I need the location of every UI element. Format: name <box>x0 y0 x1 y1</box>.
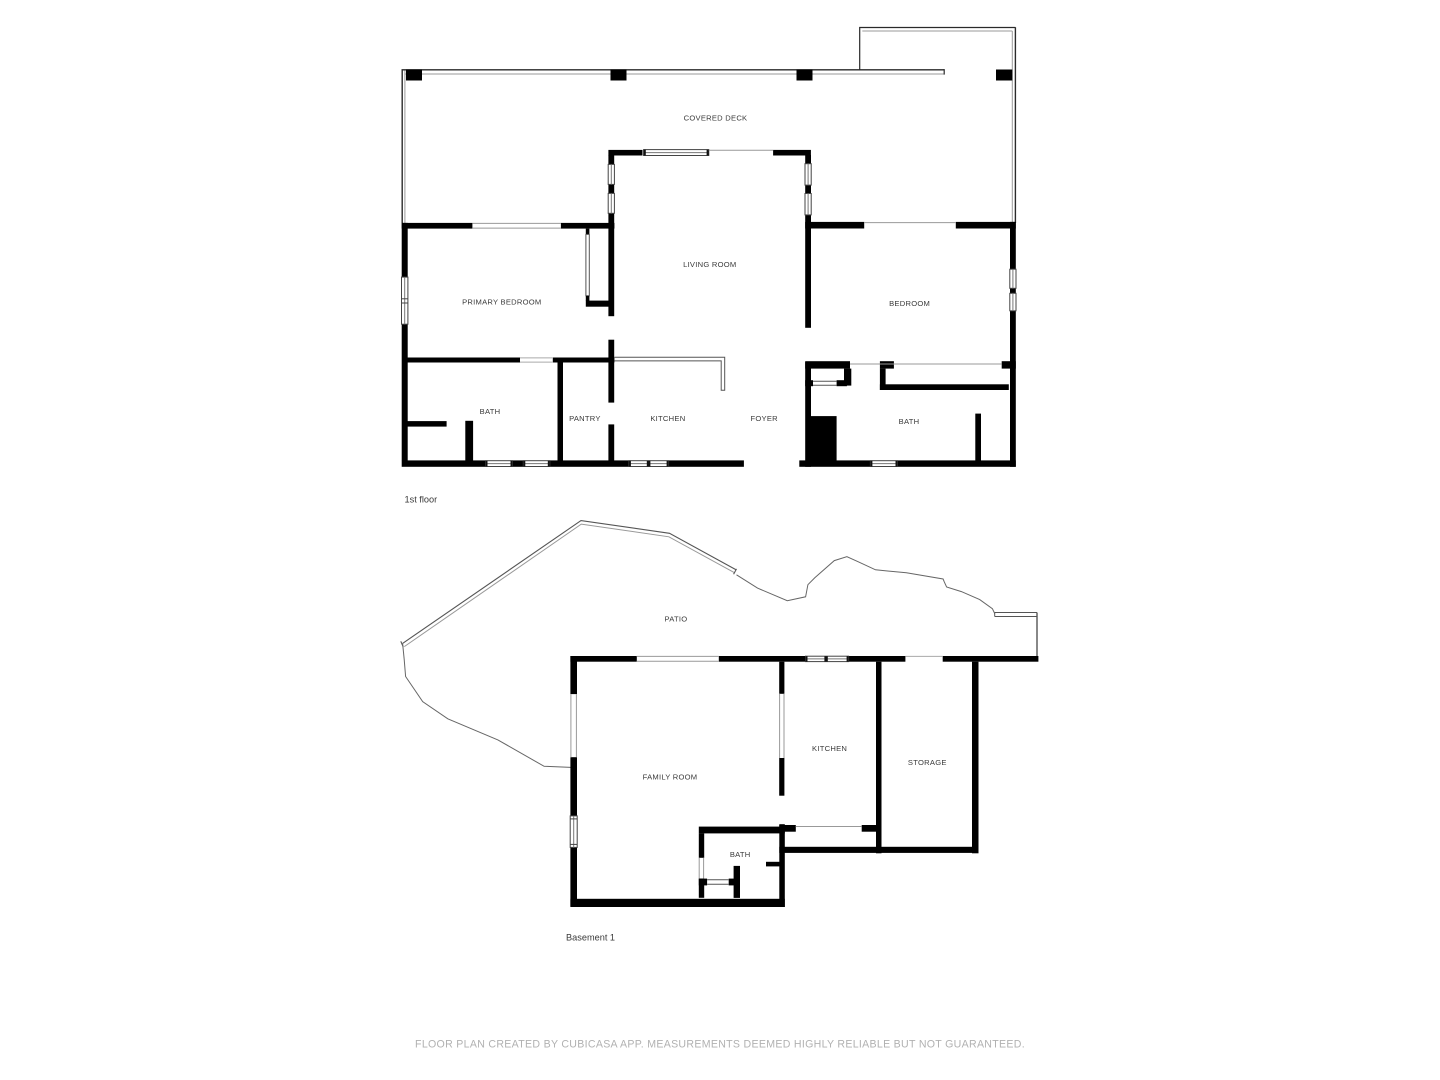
svg-text:Basement 1: Basement 1 <box>566 933 615 943</box>
svg-text:1st floor: 1st floor <box>405 495 438 505</box>
svg-text:STORAGE: STORAGE <box>908 758 947 767</box>
svg-text:KITCHEN: KITCHEN <box>650 414 685 423</box>
svg-text:BATH: BATH <box>730 850 751 859</box>
svg-text:LIVING ROOM: LIVING ROOM <box>683 260 736 269</box>
svg-text:BATH: BATH <box>899 417 920 426</box>
svg-text:FLOOR PLAN CREATED BY CUBICASA: FLOOR PLAN CREATED BY CUBICASA APP. MEAS… <box>415 1039 1025 1051</box>
svg-text:FOYER: FOYER <box>750 414 778 423</box>
svg-text:BEDROOM: BEDROOM <box>889 299 930 308</box>
svg-text:FAMILY ROOM: FAMILY ROOM <box>643 773 698 782</box>
svg-text:PANTRY: PANTRY <box>569 414 601 423</box>
svg-text:PRIMARY BEDROOM: PRIMARY BEDROOM <box>462 298 541 307</box>
svg-text:COVERED DECK: COVERED DECK <box>684 113 748 122</box>
svg-text:BATH: BATH <box>480 407 501 416</box>
svg-text:KITCHEN: KITCHEN <box>812 744 847 753</box>
svg-text:PATIO: PATIO <box>665 615 688 624</box>
